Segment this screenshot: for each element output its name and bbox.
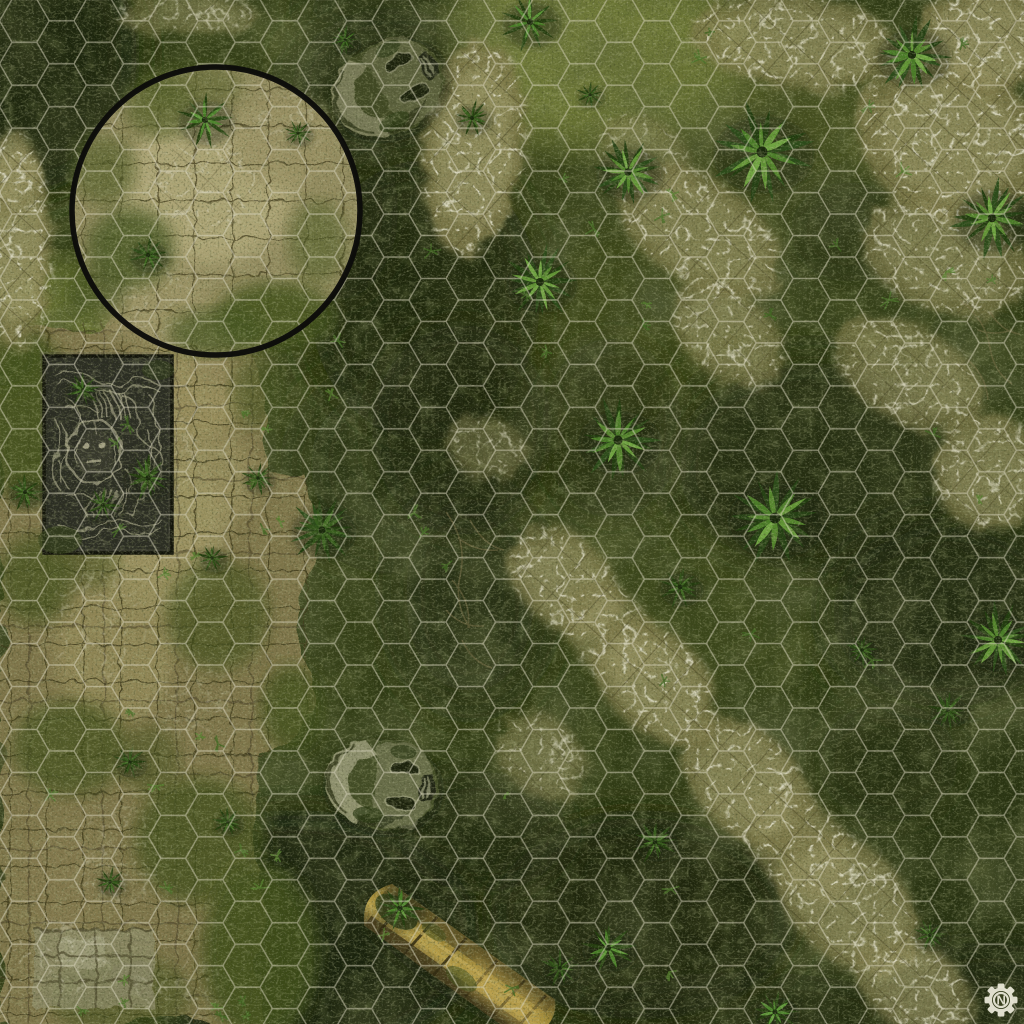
svg-text:N: N (997, 992, 1006, 1007)
